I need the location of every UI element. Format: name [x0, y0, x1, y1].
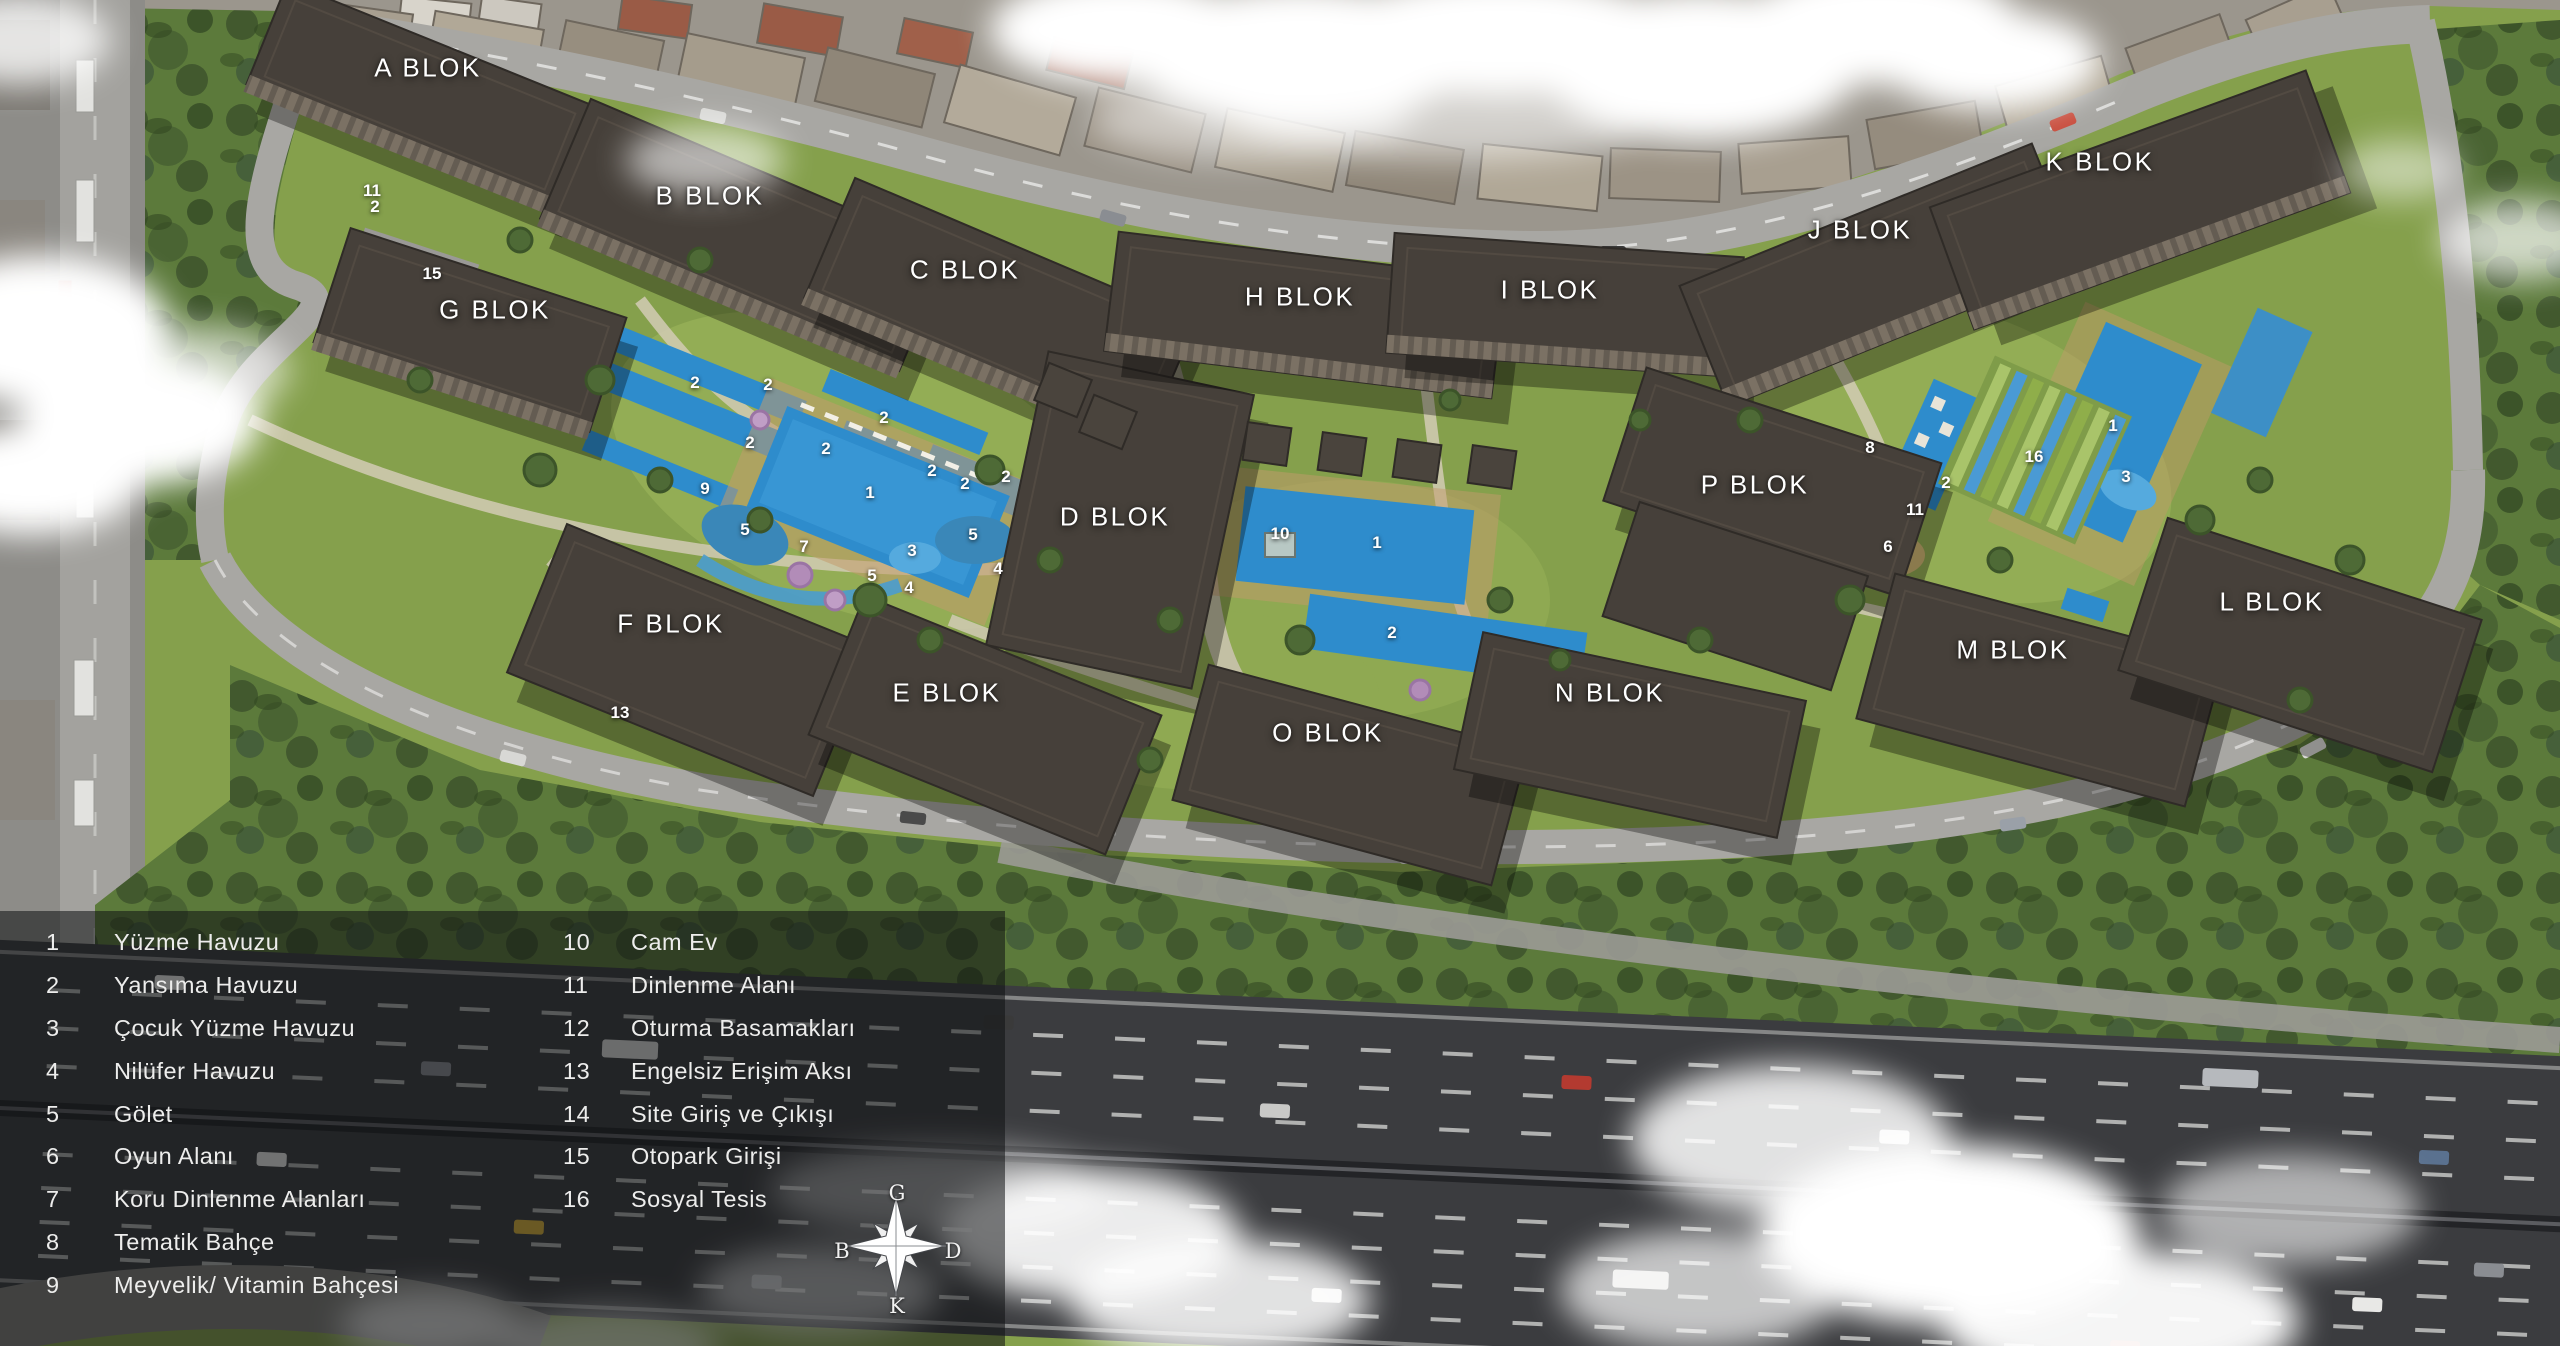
block-label-m: M BLOK — [1956, 635, 2069, 666]
block-label-f: F BLOK — [617, 609, 724, 640]
block-label-l: L BLOK — [2219, 587, 2324, 618]
block-label-k: K BLOK — [2046, 147, 2155, 178]
block-label-a: A BLOK — [374, 53, 482, 84]
block-label-d: D BLOK — [1060, 502, 1170, 533]
block-label-j: J BLOK — [1808, 215, 1913, 246]
block-label-o: O BLOK — [1272, 718, 1384, 749]
block-label-c: C BLOK — [910, 255, 1020, 286]
block-label-p: P BLOK — [1701, 470, 1809, 501]
block-labels-layer: A BLOKB BLOKC BLOKG BLOKH BLOKI BLOKJ BL… — [0, 0, 2560, 1346]
block-label-g: G BLOK — [439, 295, 551, 326]
masterplan-render: 1Yüzme Havuzu2Yansıma Havuzu3Çocuk Yüzme… — [0, 0, 2560, 1346]
block-label-e: E BLOK — [893, 678, 1002, 709]
block-label-h: H BLOK — [1245, 282, 1355, 313]
block-label-n: N BLOK — [1555, 678, 1665, 709]
block-label-b: B BLOK — [656, 181, 765, 212]
block-label-i: I BLOK — [1501, 275, 1600, 306]
